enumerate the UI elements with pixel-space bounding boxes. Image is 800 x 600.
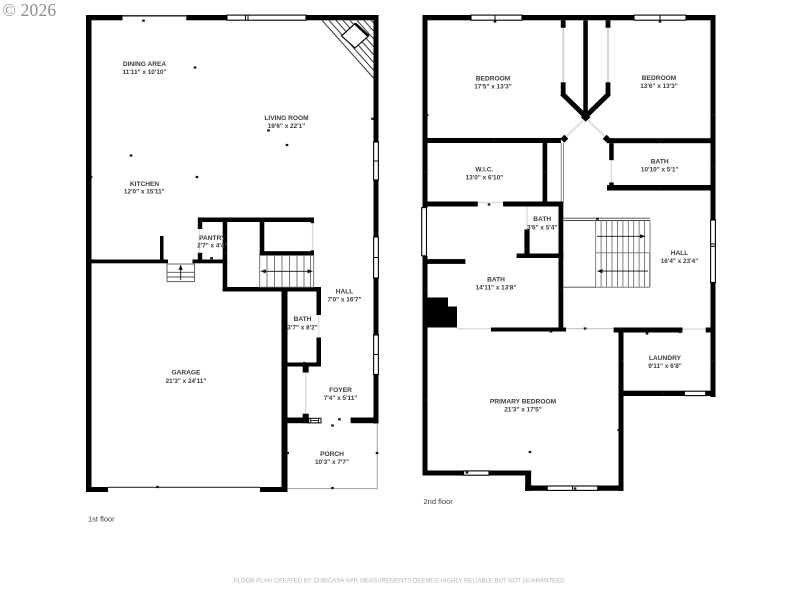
svg-text:BATH: BATH (651, 159, 669, 166)
svg-text:KITCHEN: KITCHEN (130, 181, 160, 188)
svg-text:16'4" x 23'4": 16'4" x 23'4" (661, 258, 699, 265)
svg-text:13'6" x 13'3": 13'6" x 13'3" (640, 83, 678, 90)
svg-text:LAUNDRY: LAUNDRY (649, 355, 682, 362)
svg-text:2nd floor: 2nd floor (424, 497, 454, 506)
svg-text:3'7" x 8'2": 3'7" x 8'2" (287, 325, 317, 332)
svg-text:14'11" x 13'8": 14'11" x 13'8" (476, 284, 517, 291)
svg-text:BATH: BATH (294, 316, 312, 323)
svg-text:BEDROOM: BEDROOM (476, 75, 511, 82)
svg-text:9'11" x 6'8": 9'11" x 6'8" (648, 363, 682, 370)
svg-text:21'3" x 24'11": 21'3" x 24'11" (166, 378, 207, 385)
svg-text:BEDROOM: BEDROOM (642, 75, 677, 82)
svg-text:DINING AREA: DINING AREA (123, 61, 167, 68)
svg-text:1st floor: 1st floor (88, 514, 115, 523)
svg-text:19'6" x 22'1": 19'6" x 22'1" (268, 123, 306, 130)
svg-text:3'6" x 5'4": 3'6" x 5'4" (527, 224, 557, 231)
svg-text:BATH: BATH (533, 216, 551, 223)
svg-text:HALL: HALL (336, 288, 354, 295)
svg-text:7'0" x 16'7": 7'0" x 16'7" (328, 297, 362, 304)
svg-text:FOYER: FOYER (329, 387, 352, 394)
svg-text:2'7" x 4'4": 2'7" x 4'4" (197, 243, 227, 250)
svg-text:12'0" x 15'11": 12'0" x 15'11" (124, 189, 165, 196)
svg-text:17'5" x 13'3": 17'5" x 13'3" (474, 83, 512, 90)
svg-text:11'11" x 10'10": 11'11" x 10'10" (123, 69, 167, 76)
svg-text:13'0" x 6'10": 13'0" x 6'10" (466, 174, 504, 181)
svg-text:GARAGE: GARAGE (172, 369, 202, 376)
svg-text:PORCH: PORCH (320, 451, 344, 458)
svg-text:10'10" x 5'1": 10'10" x 5'1" (641, 166, 679, 173)
svg-text:W.I.C.: W.I.C. (475, 166, 493, 173)
svg-text:7'4" x 5'11": 7'4" x 5'11" (324, 395, 358, 402)
svg-text:BATH: BATH (487, 276, 505, 283)
svg-text:FLOOR PLAN CREATED BY CUBICASA: FLOOR PLAN CREATED BY CUBICASA APP. MEAS… (234, 579, 567, 585)
svg-text:LIVING ROOM: LIVING ROOM (264, 115, 309, 122)
svg-text:PANTRY: PANTRY (199, 235, 226, 242)
svg-text:21'3" x 17'5": 21'3" x 17'5" (504, 407, 542, 414)
svg-text:10'3" x 7'7": 10'3" x 7'7" (315, 459, 349, 466)
svg-text:© 2026: © 2026 (3, 0, 57, 20)
svg-text:PRIMARY BEDROOM: PRIMARY BEDROOM (490, 399, 557, 406)
svg-text:HALL: HALL (671, 250, 689, 257)
